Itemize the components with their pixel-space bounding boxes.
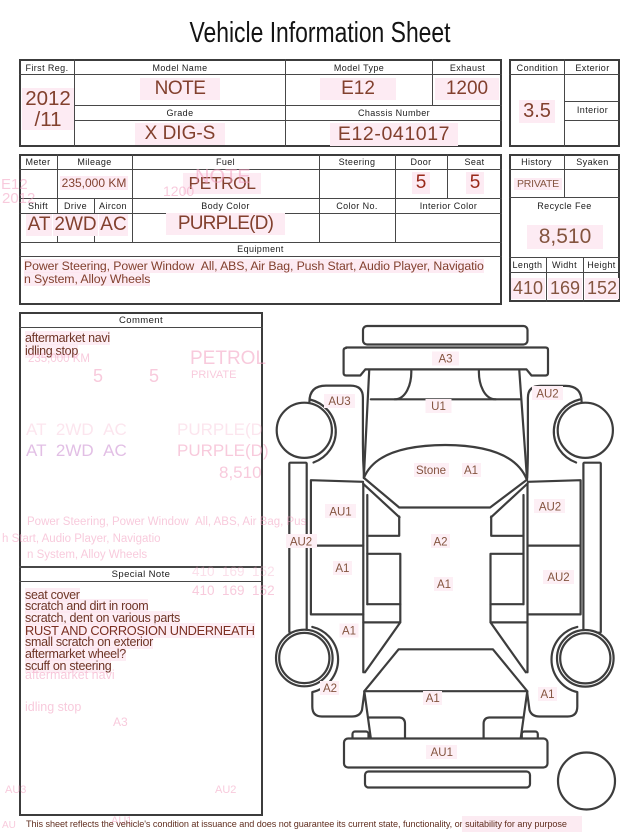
svg-text:Stone: Stone <box>416 465 446 477</box>
svg-text:AU2: AU2 <box>547 572 569 584</box>
svg-text:AU2: AU2 <box>290 537 312 549</box>
svg-text:AU1: AU1 <box>329 507 351 519</box>
svg-text:AU2: AU2 <box>536 389 558 401</box>
svg-text:A1: A1 <box>426 693 440 705</box>
svg-text:A3: A3 <box>438 354 452 366</box>
svg-text:AU3: AU3 <box>328 396 350 408</box>
svg-text:A1: A1 <box>335 563 349 575</box>
svg-text:A1: A1 <box>342 626 356 638</box>
svg-text:A2: A2 <box>323 683 337 695</box>
svg-text:A1: A1 <box>437 579 451 591</box>
svg-text:A1: A1 <box>540 689 554 701</box>
svg-text:U1: U1 <box>431 401 446 413</box>
svg-text:AU1: AU1 <box>431 747 453 759</box>
svg-text:A2: A2 <box>433 537 447 549</box>
svg-text:A1: A1 <box>464 465 478 477</box>
svg-text:AU2: AU2 <box>539 502 561 514</box>
